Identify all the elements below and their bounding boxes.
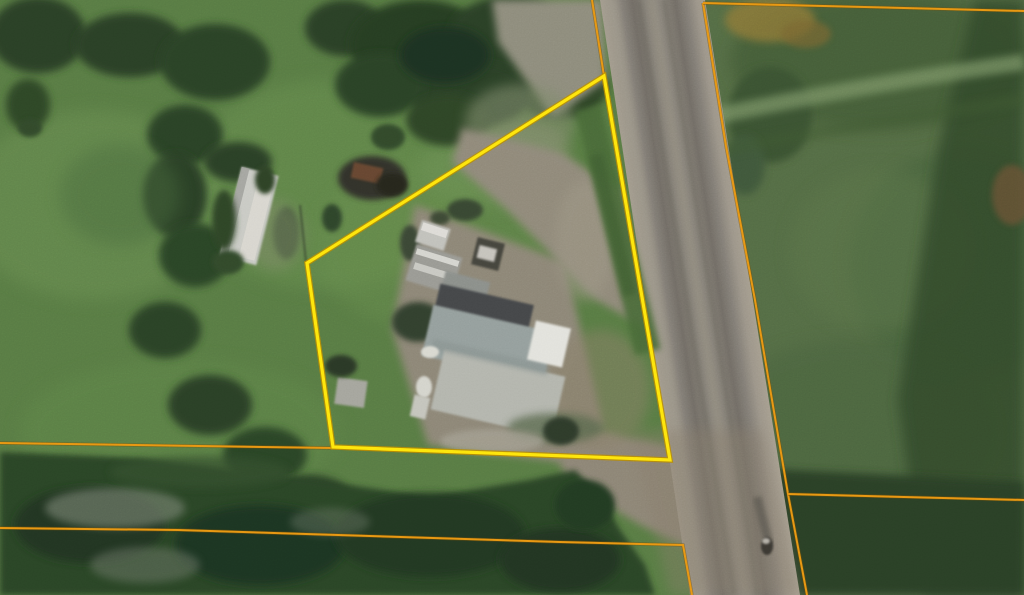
- map-canvas[interactable]: [0, 0, 1024, 595]
- imagery-grain-overlay: [0, 0, 1024, 595]
- satellite-map-view: [0, 0, 1024, 595]
